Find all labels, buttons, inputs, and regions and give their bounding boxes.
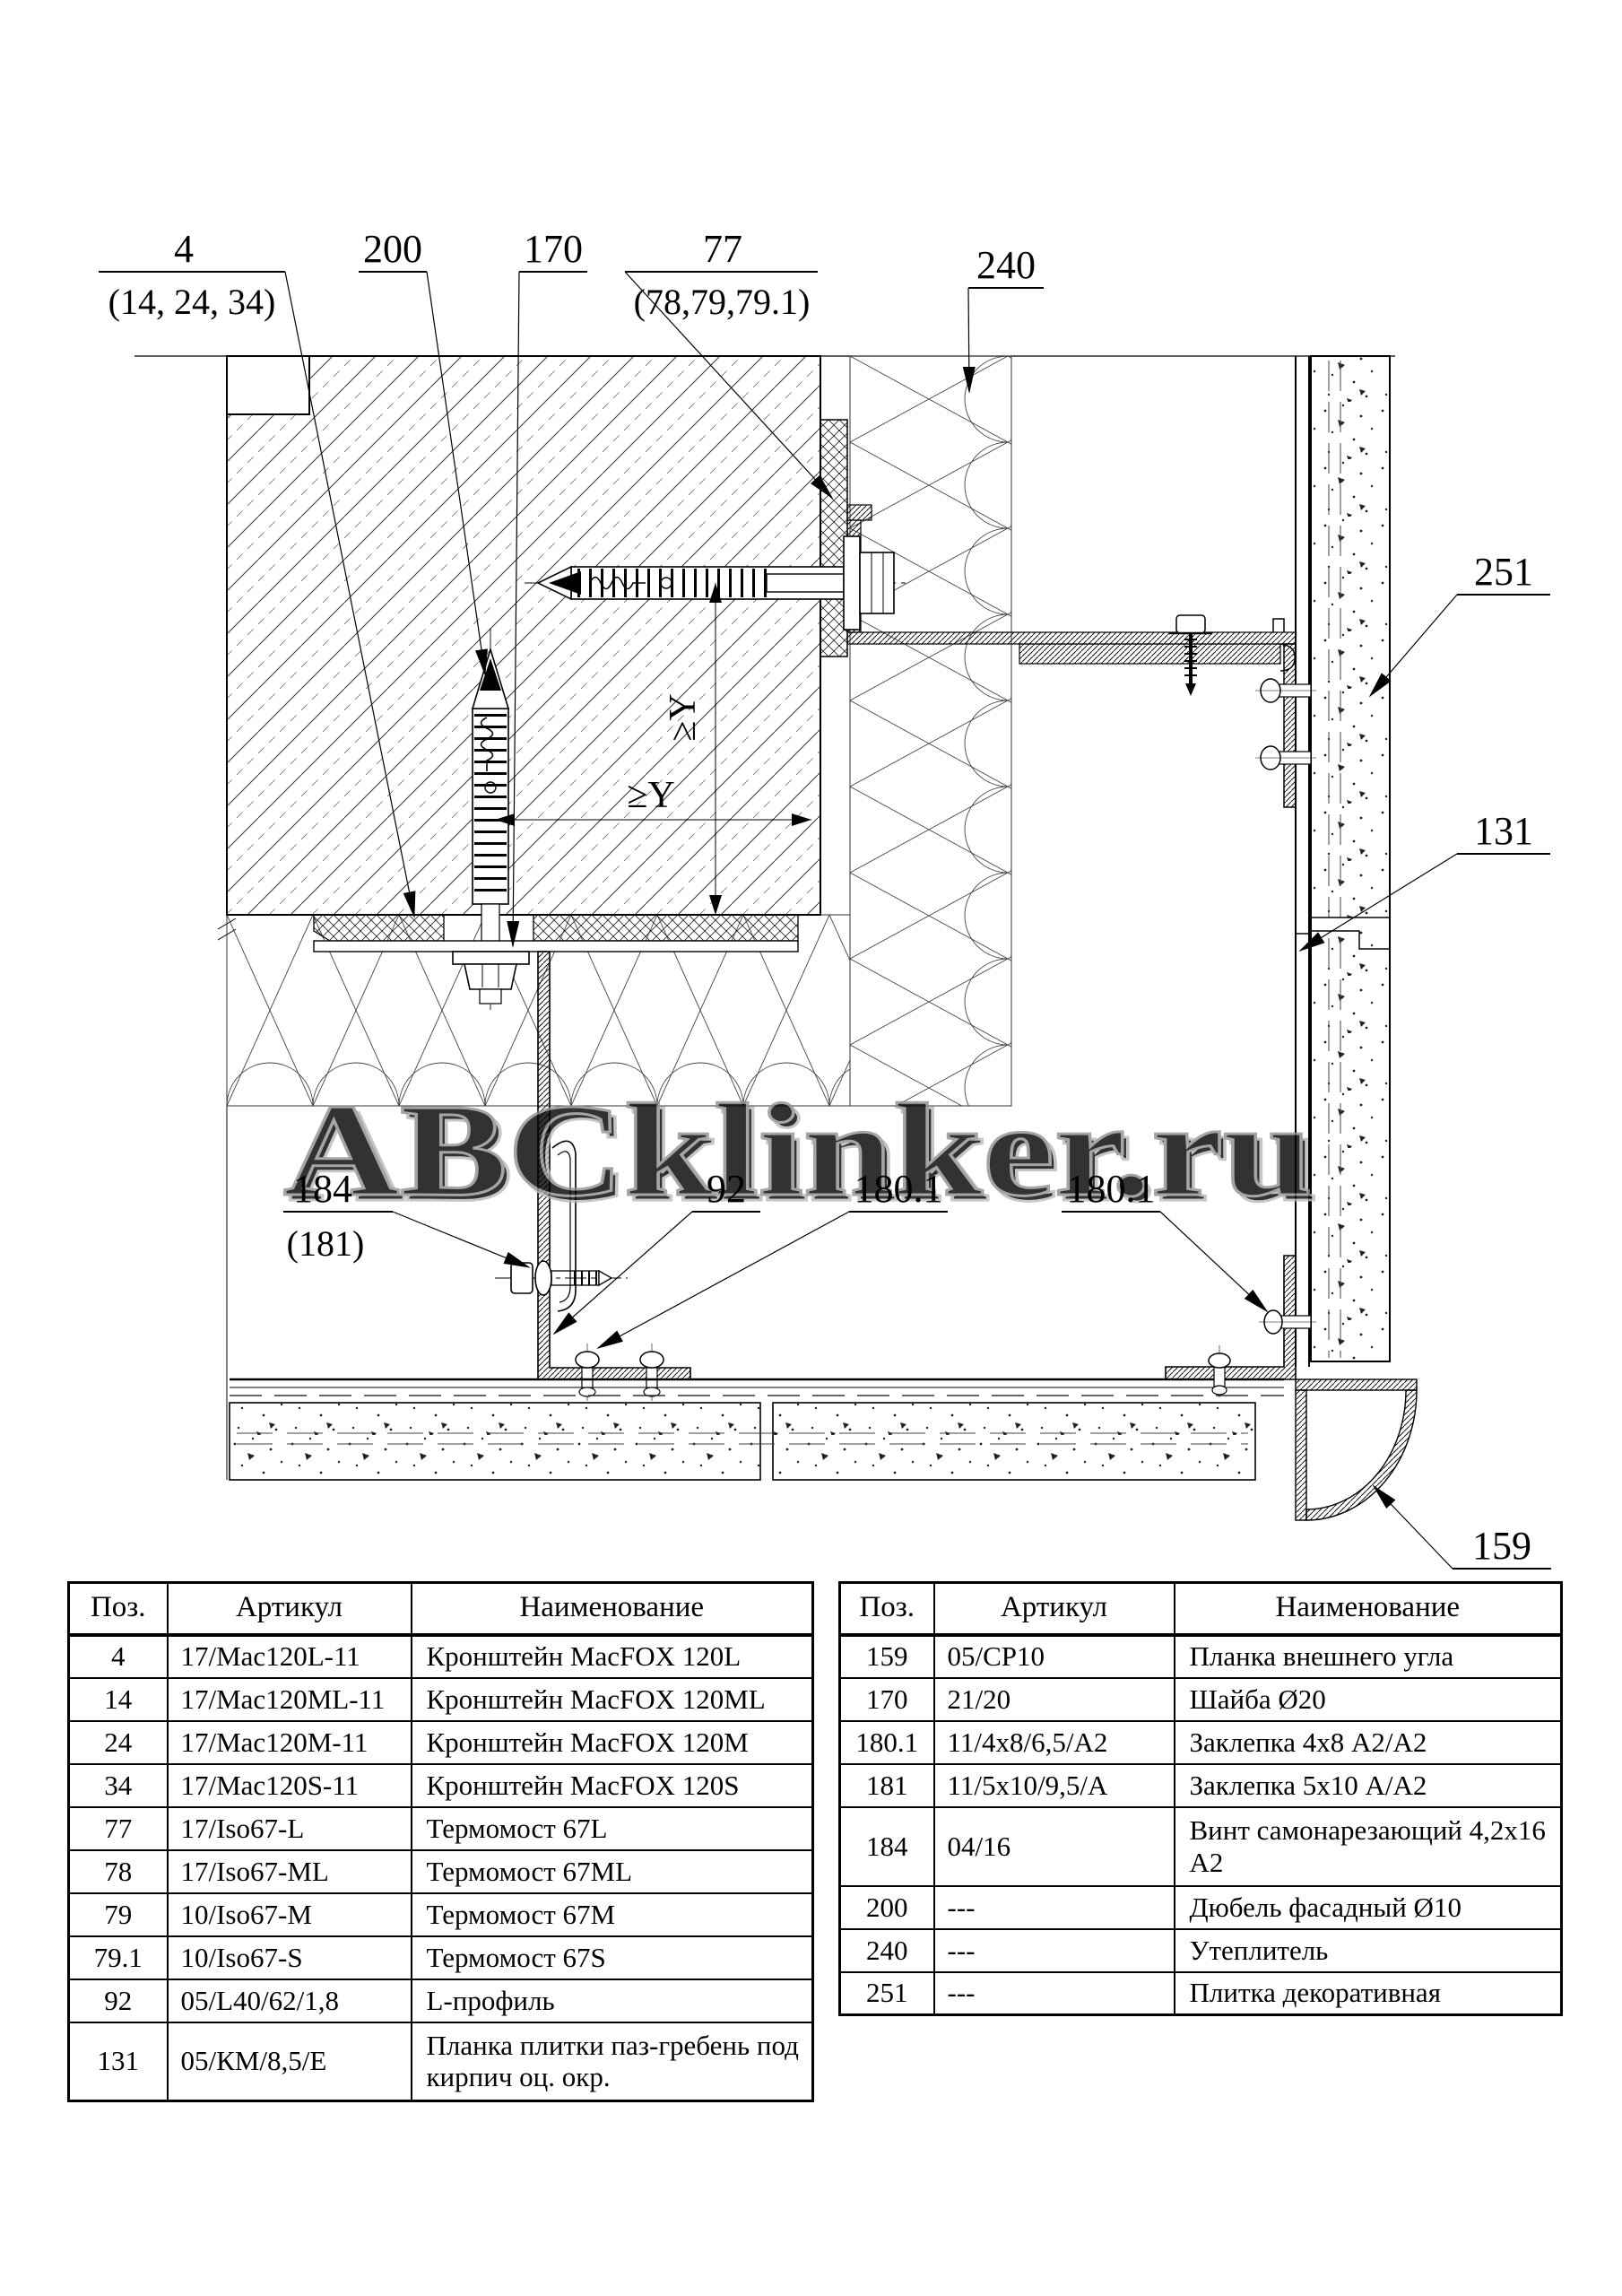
bottom-slab <box>230 1379 1284 1480</box>
svg-text:180.1: 180.1 <box>854 1167 943 1211</box>
svg-text:184: 184 <box>293 1167 352 1211</box>
table-row: 3417/Mac120S-11Кронштейн MacFOX 120S <box>69 1764 813 1807</box>
table-header-row: Поз. Артикул Наименование <box>69 1583 813 1635</box>
masonry-wall <box>227 356 820 915</box>
col-header-name: Наименование <box>1175 1583 1562 1635</box>
facade-tile <box>1311 356 1390 1361</box>
bracket-tab <box>1273 619 1284 632</box>
watermark: ABCklinker.ru ABCklinker.ru <box>283 1077 1318 1230</box>
svg-text:(181): (181) <box>287 1223 365 1264</box>
corner-profile <box>1296 1379 1417 1520</box>
table-row: 18404/16Винт самонарезающий 4,2x16 А2 <box>840 1807 1562 1886</box>
thermal-pads <box>314 915 798 941</box>
table-row: 7717/Iso67-LТермомост 67L <box>69 1807 813 1850</box>
svg-text:240: 240 <box>976 243 1036 287</box>
corner-angle <box>1166 1256 1316 1397</box>
table-row: 200---Дюбель фасадный Ø10 <box>840 1886 1562 1929</box>
svg-text:180.1: 180.1 <box>1067 1167 1156 1211</box>
anchor-hex-head <box>860 552 894 613</box>
svg-text:170: 170 <box>524 227 583 271</box>
bracket-arm <box>847 632 1296 644</box>
svg-text:251: 251 <box>1474 550 1533 594</box>
anchor-flange <box>844 536 860 630</box>
table-row: 1417/Mac120ML-11Кронштейн MacFOX 120ML <box>69 1678 813 1721</box>
svg-text:92: 92 <box>707 1167 746 1211</box>
svg-text:(78,79,79.1): (78,79,79.1) <box>634 282 811 322</box>
svg-text:131: 131 <box>1474 809 1533 853</box>
callout-159: 159 <box>1374 1486 1551 1569</box>
table-row: 17021/20Шайба Ø20 <box>840 1678 1562 1721</box>
table-row: 9205/L40/62/1,8L-профиль <box>69 1979 813 2022</box>
table-row: 18111/5x10/9,5/АЗаклепка 5x10 А/А2 <box>840 1764 1562 1807</box>
table-row: 13105/КМ/8,5/ЕПланка плитки паз-гребень … <box>69 2022 813 2101</box>
svg-text:159: 159 <box>1472 1524 1531 1568</box>
parts-table-right: Поз. Артикул Наименование 15905/CP10План… <box>838 1581 1563 2016</box>
page: ≥Y ≥Y ABCklinker.ru ABCklinker.ru 4 (14,… <box>0 0 1622 2296</box>
svg-text:77: 77 <box>703 227 742 271</box>
col-header-name: Наименование <box>412 1583 813 1635</box>
svg-text:200: 200 <box>363 227 422 271</box>
table-row: 417/Mac120L-11Кронштейн MacFOX 120L <box>69 1635 813 1678</box>
insulation-vertical <box>850 356 1011 1106</box>
corner-leg <box>1284 644 1296 807</box>
table-row: 180.111/4x8/6,5/А2Заклепка 4x8 А2/А2 <box>840 1721 1562 1764</box>
svg-text:(14, 24, 34): (14, 24, 34) <box>108 282 276 322</box>
dim-label-horizontal: ≥Y <box>627 775 674 816</box>
dim-label-vertical: ≥Y <box>663 693 704 741</box>
table-row: 15905/CP10Планка внешнего угла <box>840 1635 1562 1678</box>
col-header-pos: Поз. <box>69 1583 168 1635</box>
svg-text:ABCklinker.ru: ABCklinker.ru <box>283 1077 1313 1224</box>
screw-184 <box>495 1261 628 1295</box>
svg-text:4: 4 <box>174 227 194 271</box>
parts-table-left: Поз. Артикул Наименование 417/Mac120L-11… <box>67 1581 814 2102</box>
col-header-art: Артикул <box>934 1583 1175 1635</box>
table-row: 7910/Iso67-MТермомост 67M <box>69 1893 813 1936</box>
bracket-slider <box>1019 644 1280 664</box>
callout-251: 251 <box>1370 550 1550 696</box>
table-row: 7817/Iso67-MLТермомост 67ML <box>69 1850 813 1893</box>
bracket-base-plate <box>314 941 798 952</box>
table-header-row: Поз. Артикул Наименование <box>840 1583 1562 1635</box>
col-header-pos: Поз. <box>840 1583 934 1635</box>
washer-170 <box>453 952 529 964</box>
col-header-art: Артикул <box>168 1583 412 1635</box>
wall-notch <box>227 356 309 414</box>
table-row: 79.110/Iso67-SТермомост 67S <box>69 1936 813 1979</box>
table-row: 2417/Mac120M-11Кронштейн MacFOX 120M <box>69 1721 813 1764</box>
table-row: 251---Плитка декоративная <box>840 1972 1562 2015</box>
table-row: 240---Утеплитель <box>840 1929 1562 1972</box>
